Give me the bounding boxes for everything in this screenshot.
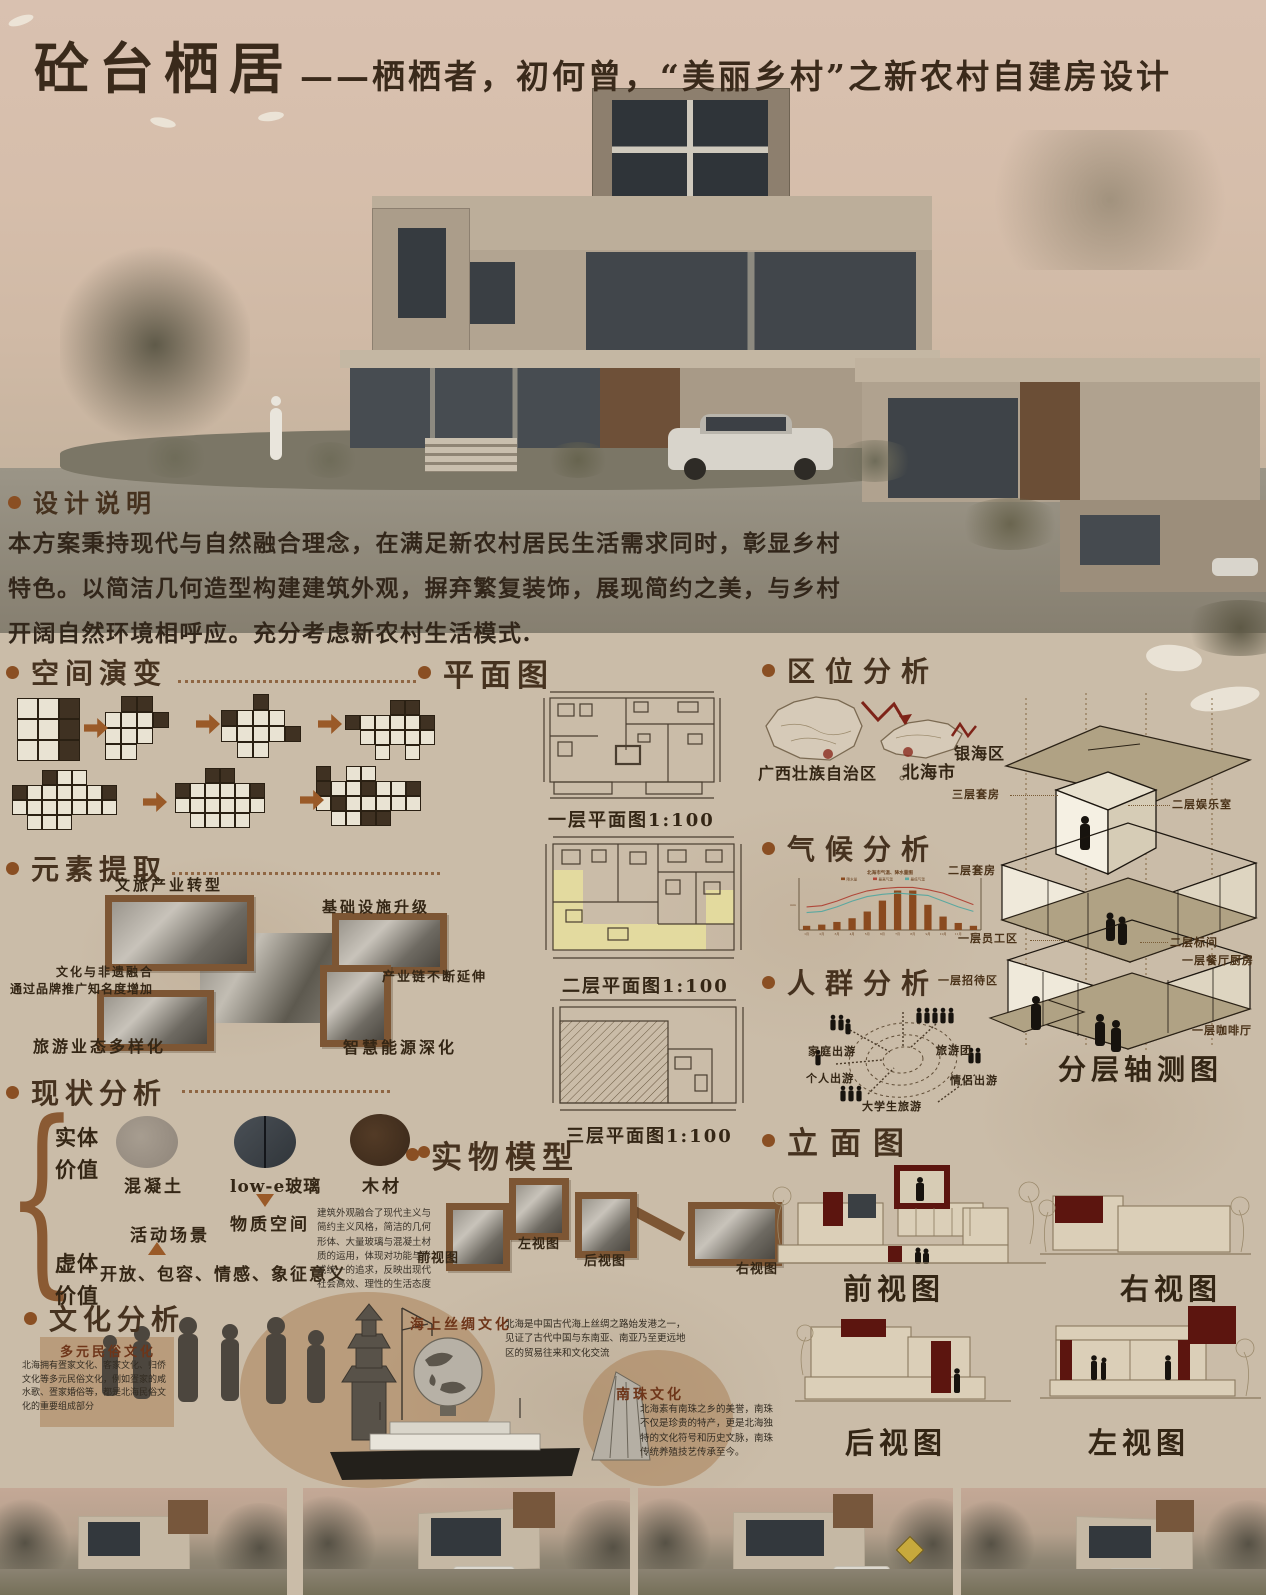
- collage-frame: [105, 895, 254, 971]
- model-photo-left: [509, 1178, 569, 1240]
- cube-cell: [375, 745, 390, 760]
- cube-cell: [17, 698, 38, 719]
- bush: [955, 498, 1065, 550]
- cube-cell: [59, 698, 80, 719]
- solid-value-label: 实体 价值: [55, 1122, 99, 1185]
- cube-cell: [221, 710, 237, 726]
- activity-label: 活动场景: [130, 1221, 210, 1246]
- axon-label: 二层套房: [948, 862, 996, 878]
- cube-cell: [285, 726, 301, 742]
- bush: [140, 438, 210, 478]
- cube-cell: [38, 698, 59, 719]
- cube-cell: [376, 796, 391, 811]
- cube-cell: [220, 798, 235, 813]
- porch-roof: [340, 350, 940, 368]
- cube-cell: [237, 710, 253, 726]
- bullet-icon: [762, 842, 775, 855]
- floor1-label: 一层平面图1:100: [548, 806, 715, 832]
- cube-cell: [253, 726, 269, 742]
- render-thumbnail-2: [303, 1488, 630, 1595]
- axon-label: 二层标间: [1170, 934, 1218, 950]
- svg-text:6月: 6月: [880, 932, 885, 936]
- dotted-rule: [182, 1090, 390, 1093]
- model-view-label: 前视图: [417, 1247, 459, 1266]
- dotted-rule: [178, 680, 416, 683]
- car-wheel: [684, 458, 706, 480]
- cube-cell: [361, 766, 376, 781]
- cube-cell: [390, 700, 405, 715]
- bullet-icon: [6, 666, 19, 679]
- cube-cell: [376, 811, 391, 826]
- cube-cell: [59, 719, 80, 740]
- axon-label: 一层员工区: [958, 930, 1018, 946]
- tower-window: [398, 228, 446, 318]
- bush: [835, 440, 915, 482]
- axon-label: 一层咖啡厅: [1192, 1022, 1252, 1038]
- cube-cell: [237, 726, 253, 742]
- cube-cell: [17, 719, 38, 740]
- cube-cell: [235, 813, 250, 828]
- render-thumbnail-1: [0, 1488, 287, 1595]
- bush: [545, 442, 611, 478]
- cube-cell: [121, 744, 137, 760]
- elevation-label: 左视图: [1088, 1420, 1190, 1462]
- cube-cell: [361, 796, 376, 811]
- section-design-note: 设计说明: [8, 484, 157, 520]
- cube-cell: [375, 715, 390, 730]
- cube-cell: [190, 813, 205, 828]
- cube-cell: [253, 694, 269, 710]
- cube-cell: [27, 815, 42, 830]
- cube-cell: [57, 800, 72, 815]
- cube-cell: [221, 726, 237, 742]
- element-label: 通过品牌推广知名度增加: [10, 980, 153, 997]
- person-head: [271, 396, 281, 406]
- axon-label: 一层餐厅厨房: [1182, 952, 1254, 968]
- glass-swatch: [234, 1116, 296, 1168]
- svg-text:7月: 7月: [895, 932, 900, 936]
- cube-cell: [316, 766, 331, 781]
- axon-label: 一层招待区: [938, 972, 998, 988]
- section-climate: 气候分析: [762, 828, 939, 868]
- back-elevation-drawing: [793, 1305, 1013, 1415]
- cube-cell: [42, 815, 57, 830]
- design-note-body: 本方案秉持现代与自然融合理念，在满足新农村居民生活需求同时，彰显乡村特色。以简洁…: [8, 522, 844, 657]
- cube-cell: [361, 781, 376, 796]
- cube-cell: [390, 730, 405, 745]
- bullet-icon: [8, 496, 21, 509]
- cube-cell: [376, 781, 391, 796]
- model-view-label: 左视图: [518, 1233, 560, 1252]
- frame-connector: [629, 1205, 685, 1241]
- cube-cell: [38, 719, 59, 740]
- svg-text:2月: 2月: [819, 932, 824, 936]
- cube-cell: [27, 800, 42, 815]
- model-view-label: 右视图: [736, 1258, 778, 1277]
- cube-cell: [205, 813, 220, 828]
- cube-cell: [391, 796, 406, 811]
- cube-cell: [102, 800, 117, 815]
- palm-trees: [960, 130, 1260, 270]
- cube-cell: [105, 712, 121, 728]
- virtual-values-text: 开放、包容、情感、象征意义: [100, 1260, 347, 1285]
- section-location: 区位分析: [762, 650, 939, 690]
- section-heading: 区位分析: [787, 650, 939, 690]
- floor2-plan-drawing: [538, 832, 752, 964]
- cube-cell: [253, 710, 269, 726]
- bullet-icon: [24, 1312, 37, 1325]
- status-note: 建筑外观融合了现代主义与简约主义风格，简洁的几何形体、大量玻璃与混凝土材质的运用…: [317, 1207, 431, 1293]
- elevation-label: 前视图: [843, 1266, 945, 1308]
- front-elevation-drawing: [768, 1158, 1048, 1270]
- cube-cell: [331, 796, 346, 811]
- region-district-label: 银海区: [954, 740, 1005, 764]
- concrete-swatch: [116, 1116, 178, 1168]
- leader-line: [1030, 940, 1070, 941]
- cube-cell: [391, 781, 406, 796]
- bullet-icon: [418, 666, 431, 679]
- section-heading: 设计说明: [33, 484, 157, 520]
- page-title: 砼台栖居: [34, 24, 294, 104]
- cube-cell: [121, 696, 137, 712]
- car-wheel: [794, 458, 816, 480]
- house-main-window: [586, 252, 916, 350]
- element-label: 产业链不断延伸: [382, 966, 487, 985]
- cube-cell: [420, 715, 435, 730]
- svg-text:最高气温: 最高气温: [879, 876, 894, 881]
- floor2-label: 二层平面图1:100: [562, 972, 729, 998]
- axon-label: 三层套房: [952, 786, 1000, 802]
- house-top-window: [612, 100, 768, 206]
- cube-cell: [137, 728, 153, 744]
- cube-cell: [105, 744, 121, 760]
- cube-cell: [175, 798, 190, 813]
- cube-cell: [12, 800, 27, 815]
- ground-floor-glass: [350, 368, 600, 448]
- cube-cell: [38, 740, 59, 761]
- cube-cell: [190, 783, 205, 798]
- cube-cell: [87, 785, 102, 800]
- floor3-label: 三层平面图1:100: [566, 1122, 733, 1148]
- cube-cell: [42, 770, 57, 785]
- section-heading: 平面图: [443, 650, 554, 695]
- bullet-icon: [762, 976, 775, 989]
- section-people: 人群分析: [762, 962, 939, 1002]
- cube-cell: [102, 785, 117, 800]
- arrow-right-icon: [143, 792, 167, 812]
- svg-text:10月: 10月: [940, 932, 947, 936]
- cube-cell: [346, 796, 361, 811]
- cube-cell: [253, 742, 269, 758]
- cube-cell: [331, 811, 346, 826]
- bullet-icon: [6, 862, 19, 875]
- wood-swatch: [350, 1114, 410, 1166]
- tree-silhouette: [60, 240, 250, 450]
- cube-cell: [346, 781, 361, 796]
- bullet-icon: [762, 664, 775, 677]
- leader-line: [1128, 805, 1170, 806]
- element-label: 文旅产业转型: [115, 874, 223, 895]
- cube-cell: [390, 715, 405, 730]
- cube-cell: [220, 783, 235, 798]
- right-lower-window: [1080, 515, 1160, 565]
- cube-cell: [331, 781, 346, 796]
- cube-cell: [360, 715, 375, 730]
- cube-cell: [57, 815, 72, 830]
- steps: [425, 438, 517, 472]
- left-elevation-drawing: [1038, 1298, 1263, 1410]
- svg-text:降水量: 降水量: [847, 876, 858, 881]
- cube-cell: [137, 712, 153, 728]
- cube-cell: [175, 783, 190, 798]
- cube-cell: [220, 813, 235, 828]
- right-wing-slab: [855, 358, 1260, 382]
- cube-cell: [153, 712, 169, 728]
- people-group-label: 个人出游: [806, 1070, 854, 1086]
- cube-cell: [406, 781, 421, 796]
- arrow-right-icon: [318, 714, 342, 734]
- cube-cell: [405, 745, 420, 760]
- cube-cell: [235, 798, 250, 813]
- swan-shape: [1145, 642, 1203, 674]
- cube-cell: [220, 768, 235, 783]
- cube-cell: [361, 811, 376, 826]
- cube-cell: [375, 730, 390, 745]
- bullet-icon: [406, 1148, 419, 1161]
- cube-cell: [121, 728, 137, 744]
- floor3-plan-drawing: [545, 997, 755, 1115]
- section-heading: 实物模型: [431, 1132, 579, 1177]
- cube-cell: [72, 800, 87, 815]
- cube-cell: [420, 730, 435, 745]
- section-elevations: 立面图: [762, 1118, 916, 1163]
- cube-cell: [42, 800, 57, 815]
- element-label: 文化与非遗融合: [56, 963, 154, 980]
- cube-cell: [346, 766, 361, 781]
- leader-line: [1140, 942, 1168, 943]
- people-group-label: 大学生旅游: [862, 1098, 922, 1114]
- bullet-icon: [762, 1134, 775, 1147]
- section-plans: 平面图: [418, 650, 554, 695]
- small-car: [1212, 558, 1258, 576]
- cube-cell: [190, 798, 205, 813]
- section-heading: 气候分析: [787, 828, 939, 868]
- render-thumbnail-4: [961, 1488, 1266, 1595]
- folk-text: 北海拥有疍家文化、客家文化、归侨文化等多元民俗文化，例如疍家的咸水歌、疍家婚俗等…: [22, 1360, 172, 1414]
- svg-text:5月: 5月: [865, 932, 870, 936]
- section-culture: 文化分析: [24, 1298, 185, 1338]
- region-province-label: 广西壮族自治区: [758, 760, 877, 784]
- arrow-right-icon: [196, 714, 220, 734]
- silk-text: 北海是中国古代海上丝绸之路始发港之一，见证了古代中国与东南亚、南亚乃至更远地区的…: [505, 1318, 691, 1361]
- pearl-title: 南珠文化: [616, 1384, 684, 1404]
- cube-cell: [316, 781, 331, 796]
- section-space-evolution: 空间演变: [6, 652, 167, 692]
- cube-cell: [72, 785, 87, 800]
- cube-cell: [269, 726, 285, 742]
- bush: [300, 442, 360, 478]
- section-model: 实物模型: [406, 1132, 579, 1177]
- model-view-label: 后视图: [584, 1250, 626, 1269]
- cube-cell: [235, 783, 250, 798]
- cube-cell: [405, 730, 420, 745]
- cube-cell: [121, 712, 137, 728]
- cube-cell: [405, 715, 420, 730]
- cube-cell: [345, 715, 360, 730]
- cube-cell: [269, 710, 285, 726]
- cube-cell: [346, 811, 361, 826]
- cube-cell: [237, 742, 253, 758]
- cube-cell: [57, 785, 72, 800]
- person-silhouette: [270, 408, 282, 460]
- virtual-value-label: 虚体 价值: [55, 1248, 99, 1311]
- element-label: 智慧能源深化: [343, 1034, 457, 1058]
- cube-cell: [205, 783, 220, 798]
- material-space-label: 物质空间: [230, 1210, 310, 1235]
- axon-label: 二层娱乐室: [1172, 796, 1232, 812]
- svg-text:9月: 9月: [925, 932, 930, 936]
- title-block: 砼台栖居 ——栖栖者，初何曾，“美丽乡村”之新农村自建房设计: [34, 24, 1172, 104]
- svg-text:最低气温: 最低气温: [911, 876, 926, 881]
- element-label: 基础设施升级: [322, 896, 430, 917]
- svg-text:8月: 8月: [910, 932, 915, 936]
- render-thumbnail-3: [638, 1488, 953, 1595]
- element-label: 旅游业态多样化: [33, 1033, 166, 1057]
- svg-text:1月: 1月: [804, 932, 809, 936]
- cube-cell: [406, 796, 421, 811]
- axonometric-drawing: [988, 688, 1266, 1068]
- svg-text:3月: 3月: [834, 932, 839, 936]
- people-group-label: 家庭出游: [808, 1043, 856, 1059]
- pearl-text: 北海素有南珠之乡的美誉，南珠不仅是珍贵的特产，更是北海独特的文化符号和历史文脉，…: [640, 1403, 780, 1460]
- cube-cell: [27, 785, 42, 800]
- section-heading: 空间演变: [31, 652, 167, 692]
- elevation-label: 右视图: [1120, 1266, 1222, 1308]
- right-elevation-drawing: [1038, 1178, 1253, 1266]
- cube-cell: [12, 785, 27, 800]
- region-city-label: 北海市: [902, 758, 956, 783]
- cube-cell: [57, 770, 72, 785]
- silk-title: 海上丝绸文化: [410, 1314, 512, 1334]
- cube-cell: [250, 798, 265, 813]
- material-label: 混凝土: [124, 1172, 184, 1197]
- axon-caption: 分层轴测图: [1058, 1048, 1223, 1088]
- poster: 砼台栖居 ——栖栖者，初何曾，“美丽乡村”之新农村自建房设计: [0, 0, 1266, 1595]
- cube-cell: [17, 740, 38, 761]
- cube-cell: [250, 783, 265, 798]
- floor1-plan-drawing: [528, 690, 736, 802]
- page-subtitle: ——栖栖者，初何曾，“美丽乡村”之新农村自建房设计: [300, 50, 1172, 98]
- material-label: low-e玻璃: [230, 1172, 321, 1197]
- model-photo-back: [575, 1192, 637, 1258]
- leader-line: [1010, 795, 1058, 796]
- cube-cell: [205, 768, 220, 783]
- folk-title: 多元民俗文化: [60, 1341, 156, 1360]
- cube-cell: [360, 730, 375, 745]
- cube-cell: [59, 740, 80, 761]
- svg-text:北海市气温、降水量图: 北海市气温、降水量图: [867, 869, 913, 876]
- section-heading: 立面图: [787, 1118, 916, 1163]
- cube-cell: [87, 800, 102, 815]
- people-group-label: 旅游团: [936, 1042, 972, 1058]
- cube-cell: [405, 700, 420, 715]
- svg-text:4月: 4月: [850, 932, 855, 936]
- cube-cell: [205, 798, 220, 813]
- section-heading: 人群分析: [787, 962, 939, 1002]
- cube-cell: [72, 770, 87, 785]
- people-group-label: 情侣出游: [950, 1072, 998, 1088]
- svg-text:mm: mm: [790, 903, 796, 907]
- cube-cell: [137, 696, 153, 712]
- car-windows: [706, 417, 786, 431]
- right-wing-wood: [1020, 382, 1080, 500]
- elevation-label: 后视图: [845, 1420, 947, 1462]
- material-label: 木材: [362, 1172, 402, 1197]
- cube-cell: [105, 728, 121, 744]
- cube-cell: [42, 785, 57, 800]
